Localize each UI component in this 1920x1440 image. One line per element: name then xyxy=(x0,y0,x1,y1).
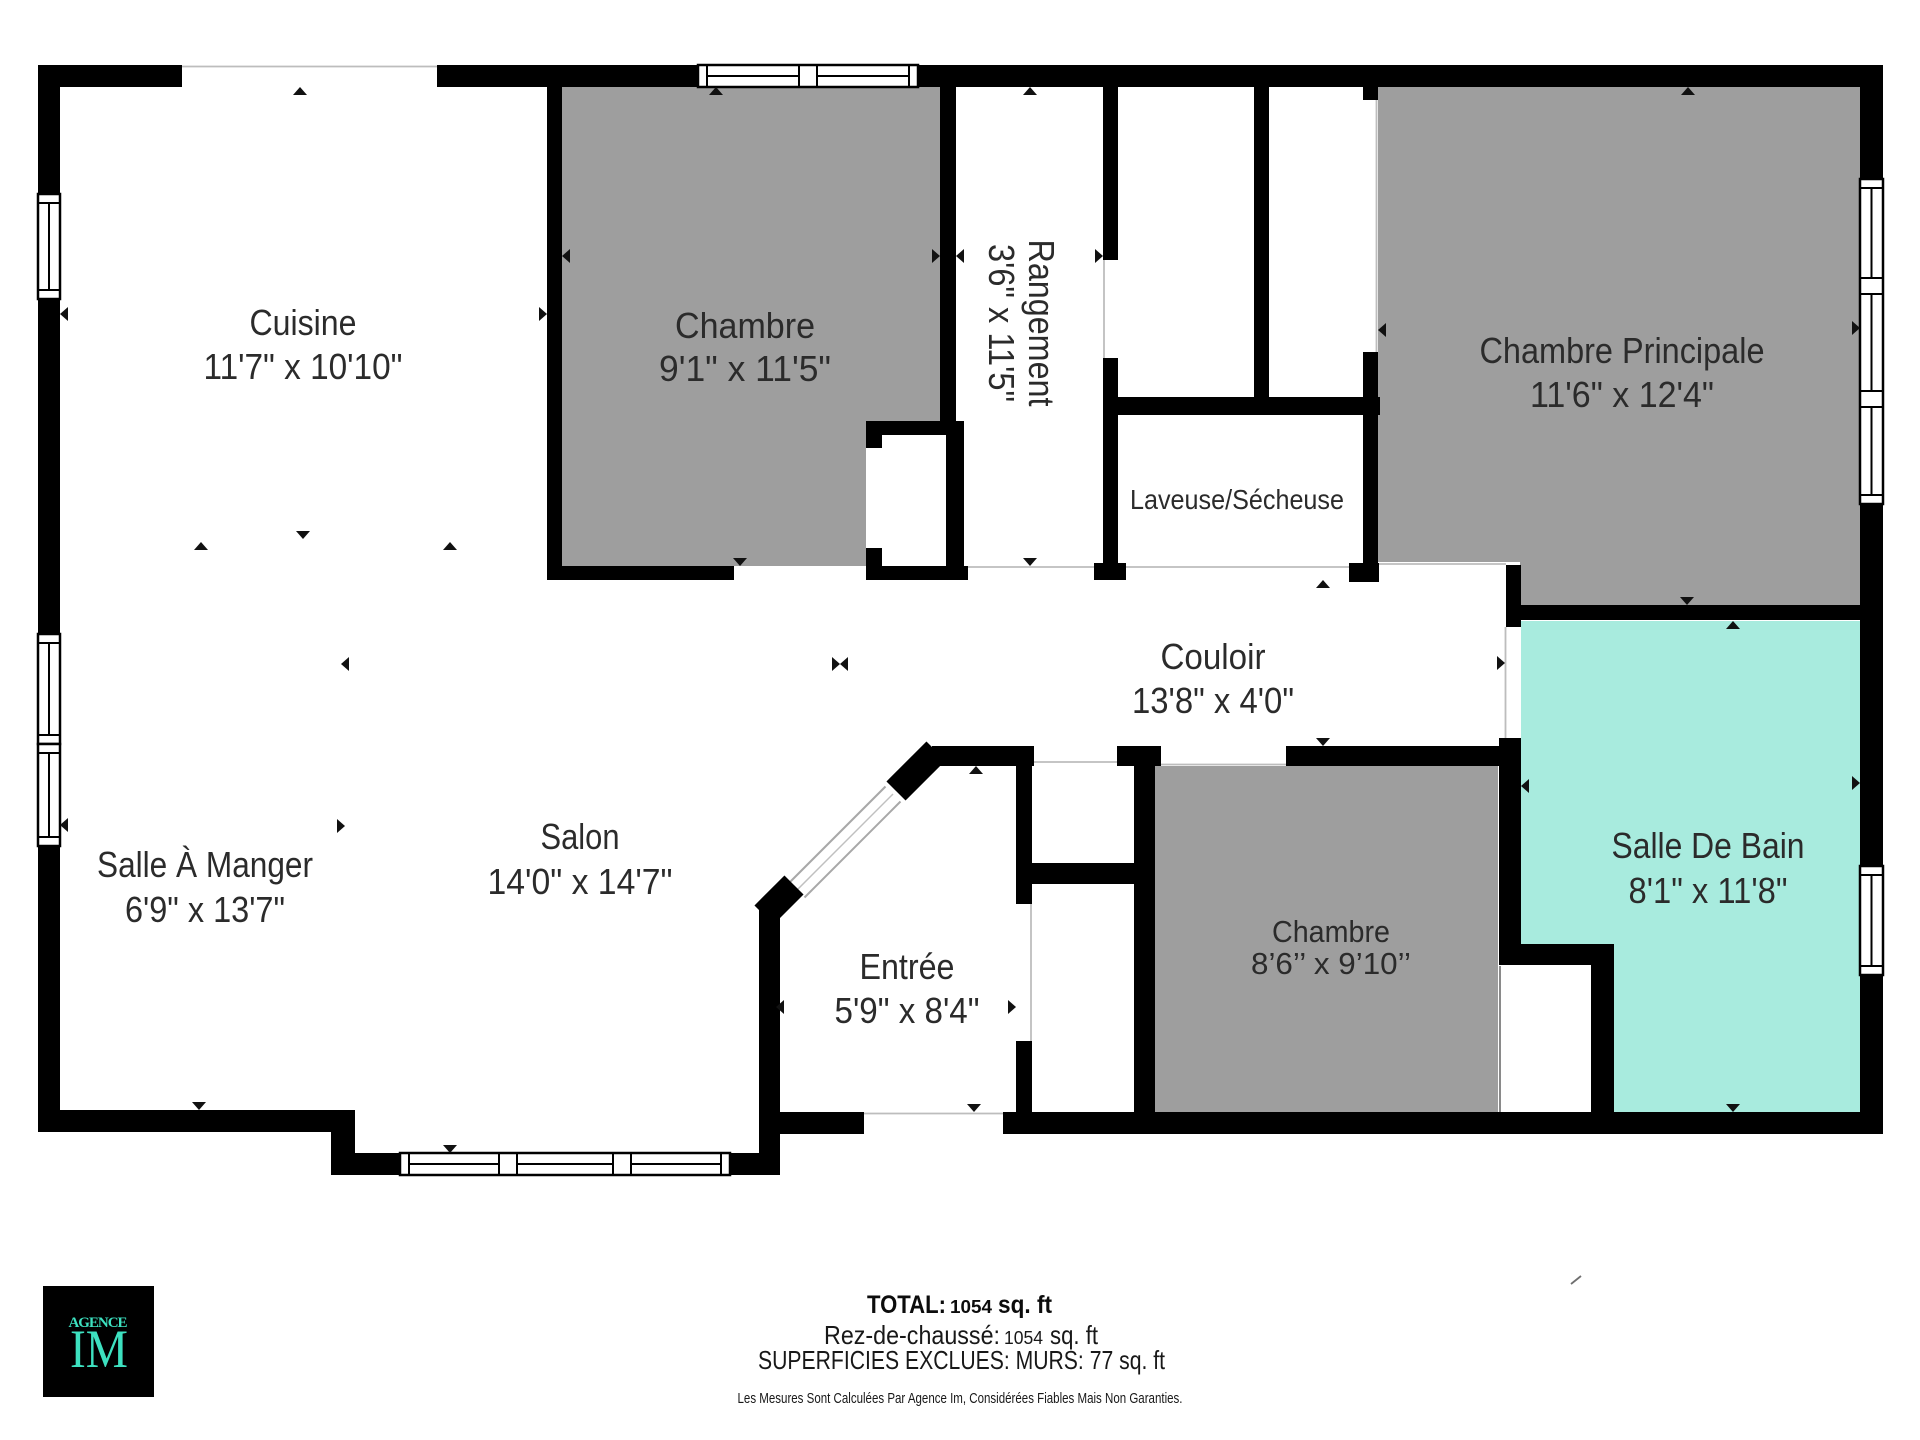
svg-text:3'6" x 11'5": 3'6" x 11'5" xyxy=(981,244,1022,402)
svg-text:TOTAL:: TOTAL: xyxy=(867,1291,946,1319)
svg-text:13'8" x 4'0": 13'8" x 4'0" xyxy=(1132,680,1294,721)
svg-text:Salle À Manger: Salle À Manger xyxy=(97,844,313,885)
svg-text:8'1" x 11'8": 8'1" x 11'8" xyxy=(1629,870,1788,911)
svg-text:Chambre Principale: Chambre Principale xyxy=(1480,330,1765,371)
svg-text:1054: 1054 xyxy=(950,1296,993,1317)
svg-text:11'7" x 10'10": 11'7" x 10'10" xyxy=(204,346,403,387)
svg-text:5'9" x 8'4": 5'9" x 8'4" xyxy=(835,990,980,1031)
svg-text:IM: IM xyxy=(70,1319,128,1379)
svg-text:11'6" x 12'4": 11'6" x 12'4" xyxy=(1530,374,1714,415)
svg-text:6'9" x 13'7": 6'9" x 13'7" xyxy=(125,889,285,930)
svg-text:Chambre: Chambre xyxy=(675,305,815,346)
svg-text:Couloir: Couloir xyxy=(1161,636,1266,677)
svg-text:8’6’’ x 9’10’’: 8’6’’ x 9’10’’ xyxy=(1251,946,1411,981)
svg-text:Chambre: Chambre xyxy=(1272,914,1390,949)
svg-text:Salon: Salon xyxy=(541,816,620,857)
svg-text:Laveuse/Sécheuse: Laveuse/Sécheuse xyxy=(1130,484,1344,515)
svg-text:Les Mesures Sont Calculées Par: Les Mesures Sont Calculées Par Agence Im… xyxy=(738,1391,1183,1407)
svg-text:sq. ft: sq. ft xyxy=(998,1291,1053,1319)
svg-text:9'1" x 11'5": 9'1" x 11'5" xyxy=(659,348,831,389)
svg-text:Salle De Bain: Salle De Bain xyxy=(1612,825,1805,866)
svg-text:Cuisine: Cuisine xyxy=(250,302,357,343)
svg-text:SUPERFICIES EXCLUES: MURS: 77: SUPERFICIES EXCLUES: MURS: 77 sq. ft xyxy=(758,1345,1166,1375)
svg-text:14'0" x 14'7": 14'0" x 14'7" xyxy=(488,861,673,902)
svg-text:Entrée: Entrée xyxy=(860,946,955,987)
svg-text:Rangement: Rangement xyxy=(1021,240,1062,407)
